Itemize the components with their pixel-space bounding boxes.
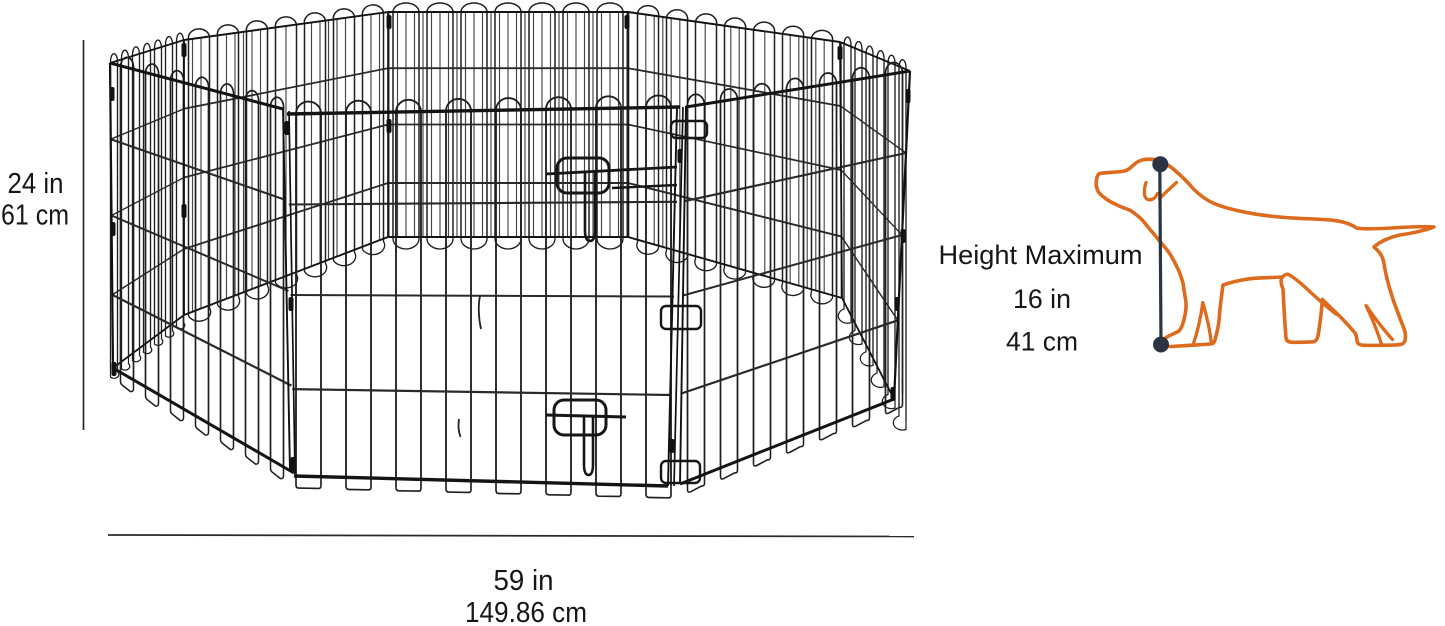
svg-text:149.86 cm: 149.86 cm	[465, 597, 587, 626]
svg-text:24 in: 24 in	[8, 168, 64, 200]
svg-text:59 in: 59 in	[494, 565, 554, 597]
svg-text:16 in: 16 in	[1013, 284, 1071, 314]
svg-text:61 cm: 61 cm	[1, 200, 69, 232]
svg-text:41 cm: 41 cm	[1006, 327, 1078, 357]
svg-text:Height Maximum: Height Maximum	[939, 240, 1143, 270]
